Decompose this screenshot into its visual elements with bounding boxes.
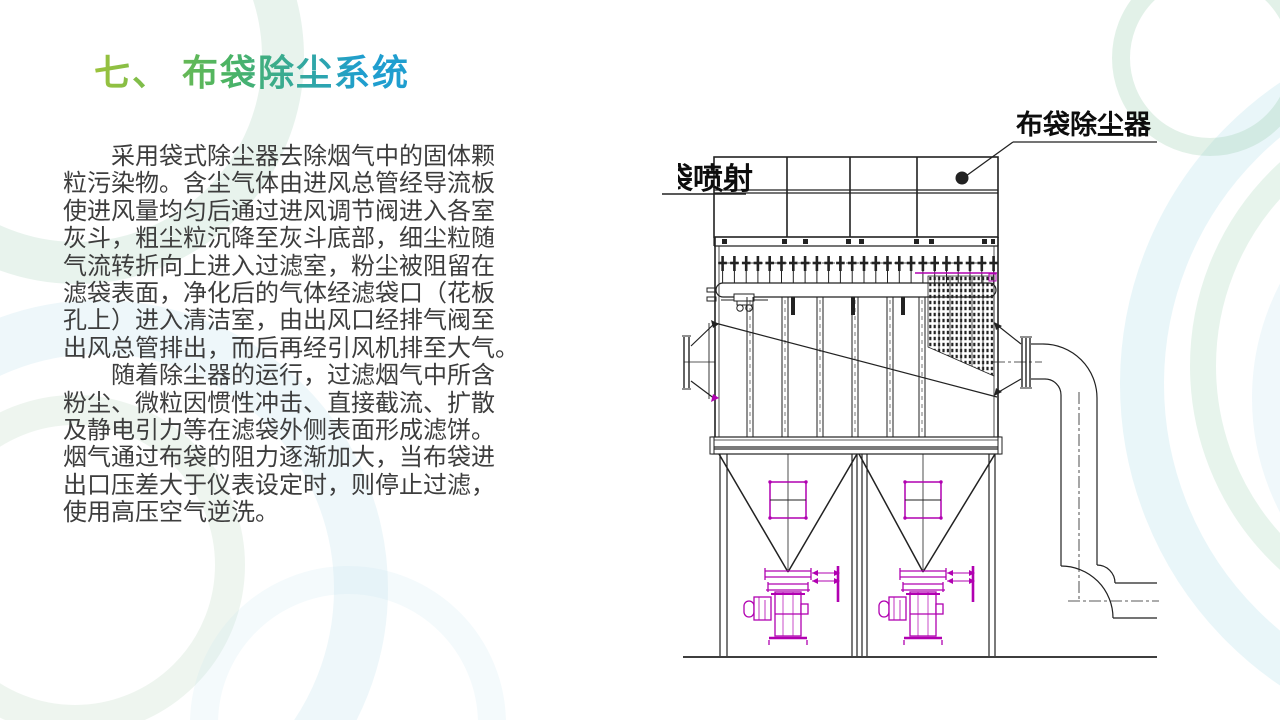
label-baghouse: 布袋除尘器 (1016, 103, 1151, 142)
inlet-nozzle (682, 320, 719, 402)
ring-beam (710, 437, 1002, 454)
rotary-valve-right (879, 566, 975, 645)
outlet-duct (993, 322, 1159, 618)
leader-dot (956, 172, 969, 185)
clean-air-plenum (714, 157, 998, 246)
label-injection: 袋喷射 (678, 154, 754, 194)
hopper-left (719, 454, 857, 572)
hopper-right (859, 454, 995, 572)
slide: 七、 布袋除尘系统 采用袋式除尘器去除烟气中的固体颗 粒污染物。含尘气体由进风总… (0, 0, 1280, 720)
rotary-valve-left (744, 566, 840, 645)
